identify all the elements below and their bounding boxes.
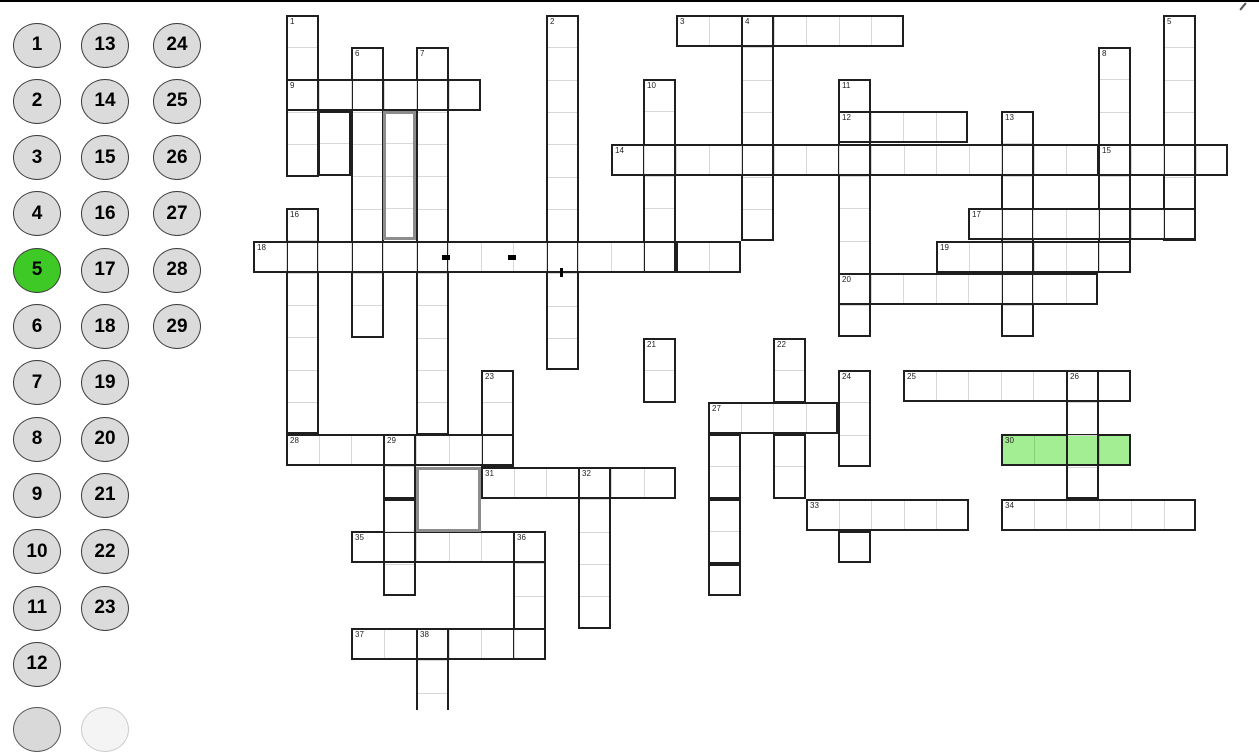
cell-divider xyxy=(548,209,577,210)
cell-divider xyxy=(580,596,609,597)
slot-number: 15 xyxy=(1102,147,1111,155)
cell-divider xyxy=(353,273,382,274)
cell-divider xyxy=(1003,176,1032,177)
outline-box xyxy=(383,499,416,596)
cell-divider xyxy=(774,17,775,45)
cell-divider xyxy=(353,144,382,145)
cell-divider xyxy=(1165,177,1194,178)
cell-divider xyxy=(288,47,317,48)
cell-divider xyxy=(548,306,577,307)
cell-divider xyxy=(1066,210,1067,238)
cell-divider xyxy=(580,499,609,500)
cell-divider xyxy=(483,402,512,403)
cell-divider xyxy=(353,209,382,210)
cell-divider xyxy=(968,372,969,400)
cell-divider xyxy=(806,146,807,174)
answer-punctuation-mark xyxy=(508,255,516,260)
cell-divider xyxy=(353,305,382,306)
cell-divider xyxy=(1099,243,1100,271)
cell-divider xyxy=(1033,372,1034,400)
cell-divider xyxy=(871,113,872,141)
cell-divider xyxy=(1196,146,1197,174)
cell-divider xyxy=(514,469,515,497)
cell-divider xyxy=(936,275,937,303)
cell-divider xyxy=(353,176,382,177)
word-slot-9[interactable]: 9 xyxy=(286,79,481,111)
cell-divider xyxy=(288,337,317,338)
cell-divider xyxy=(418,273,447,274)
cell-divider xyxy=(806,17,807,45)
cell-divider xyxy=(385,531,414,532)
outline-box xyxy=(383,111,416,240)
cell-divider xyxy=(353,112,382,113)
slot-number: 33 xyxy=(810,502,819,510)
word-slot-34[interactable]: 34 xyxy=(1001,499,1196,531)
cell-divider xyxy=(1131,210,1132,238)
cell-divider xyxy=(775,466,804,467)
word-slot-15[interactable]: 15 xyxy=(1098,144,1228,176)
slot-number: 18 xyxy=(257,244,266,252)
cell-divider xyxy=(580,532,609,533)
cell-divider xyxy=(1034,146,1035,174)
cell-divider xyxy=(449,533,450,561)
cell-divider xyxy=(840,176,869,177)
cell-divider xyxy=(969,243,970,271)
cell-divider xyxy=(418,660,447,661)
cell-divider xyxy=(286,243,287,271)
slot-number: 7 xyxy=(420,50,424,58)
outline-box xyxy=(416,467,481,532)
cell-divider xyxy=(709,243,710,271)
cell-divider xyxy=(416,533,417,561)
cell-divider xyxy=(1001,243,1002,271)
word-slot-18[interactable]: 18 xyxy=(253,241,676,273)
slot-number: 12 xyxy=(842,114,851,122)
cell-divider xyxy=(1131,146,1132,174)
slot-number: 34 xyxy=(1005,502,1014,510)
cell-divider xyxy=(839,146,840,174)
cell-divider xyxy=(383,243,384,271)
slot-number: 3 xyxy=(680,18,684,26)
cell-divider xyxy=(1100,79,1129,80)
cell-divider xyxy=(839,501,840,529)
cell-divider xyxy=(643,243,644,271)
cell-divider xyxy=(645,370,674,371)
cell-divider xyxy=(741,404,742,432)
word-slot-12[interactable]: 12 xyxy=(838,111,968,143)
cell-divider xyxy=(645,176,674,177)
answer-punctuation-mark xyxy=(442,255,450,260)
slot-number: 17 xyxy=(972,211,981,219)
cell-divider xyxy=(418,338,447,339)
cell-divider xyxy=(1100,112,1129,113)
cell-divider xyxy=(288,112,317,113)
cell-divider xyxy=(1003,305,1032,306)
cell-divider xyxy=(1099,436,1100,464)
cell-divider xyxy=(840,402,869,403)
cell-divider xyxy=(318,243,319,271)
cell-divider xyxy=(936,146,937,174)
cell-divider xyxy=(936,501,937,529)
slot-number: 35 xyxy=(355,534,364,542)
cell-divider xyxy=(871,146,872,174)
cell-divider xyxy=(611,243,612,271)
crossword-grid[interactable]: 3012345678910111213141516171819202122232… xyxy=(0,0,1259,736)
cell-divider xyxy=(1165,80,1194,81)
slot-number: 21 xyxy=(647,341,656,349)
cell-divider xyxy=(578,243,579,271)
cell-divider xyxy=(1034,501,1035,529)
cell-divider xyxy=(1033,275,1034,303)
word-slot-29[interactable]: 29 xyxy=(383,434,416,499)
cell-divider xyxy=(351,243,352,271)
cell-divider xyxy=(288,305,317,306)
cell-divider xyxy=(481,243,482,271)
slot-number: 20 xyxy=(842,276,851,284)
cell-divider xyxy=(416,243,417,271)
outline-box xyxy=(676,241,741,273)
cell-divider xyxy=(384,81,385,109)
slot-number: 9 xyxy=(290,82,294,90)
word-slot-17[interactable]: 17 xyxy=(968,208,1196,240)
cell-divider xyxy=(1163,146,1164,174)
slot-number: 25 xyxy=(907,373,916,381)
word-slot-3[interactable]: 3 xyxy=(676,15,904,47)
cell-divider xyxy=(645,111,674,112)
cell-divider xyxy=(1001,372,1002,400)
cell-divider xyxy=(1165,47,1194,48)
cell-divider xyxy=(351,81,352,109)
cell-divider xyxy=(449,630,450,658)
slot-number: 6 xyxy=(355,50,359,58)
cell-divider xyxy=(1066,501,1067,529)
cell-divider xyxy=(386,143,413,144)
cell-divider xyxy=(1131,501,1132,529)
cell-divider xyxy=(384,630,385,658)
cell-divider xyxy=(548,80,577,81)
cell-divider xyxy=(840,241,869,242)
outline-box xyxy=(708,564,741,596)
slot-number: 13 xyxy=(1005,114,1014,122)
cell-divider xyxy=(418,693,447,694)
cell-divider xyxy=(743,112,772,113)
cell-divider xyxy=(481,436,482,464)
cell-divider xyxy=(1034,436,1035,464)
cell-divider xyxy=(1098,210,1099,238)
word-slot-27[interactable]: 27 xyxy=(708,402,838,434)
cell-divider xyxy=(806,404,807,432)
slot-number: 23 xyxy=(485,373,494,381)
cell-divider xyxy=(840,208,869,209)
word-slot-21[interactable]: 21 xyxy=(643,338,676,403)
slot-number: 38 xyxy=(420,631,429,639)
cell-divider xyxy=(775,370,804,371)
cell-divider xyxy=(903,113,904,141)
slot-number: 4 xyxy=(745,18,749,26)
cell-divider xyxy=(1001,210,1002,238)
cell-divider xyxy=(385,466,414,467)
cell-divider xyxy=(840,305,869,306)
word-slot-24[interactable]: 24 xyxy=(838,370,871,467)
cell-divider xyxy=(288,144,317,145)
word-slot-4[interactable]: 4 xyxy=(741,15,774,241)
outline-box xyxy=(708,434,741,499)
cell-divider xyxy=(773,404,774,432)
cell-divider xyxy=(1066,275,1067,303)
cell-divider xyxy=(320,143,349,144)
cell-divider xyxy=(709,17,710,45)
outline-box xyxy=(773,434,806,499)
cell-divider xyxy=(1066,243,1067,271)
cell-divider xyxy=(416,436,417,464)
cell-divider xyxy=(969,146,970,174)
cell-divider xyxy=(548,338,577,339)
cell-divider xyxy=(418,305,447,306)
cell-divider xyxy=(546,243,547,271)
cell-divider xyxy=(288,273,317,274)
cell-divider xyxy=(418,144,447,145)
cell-divider xyxy=(385,564,414,565)
cell-divider xyxy=(514,630,515,658)
cell-divider xyxy=(288,370,317,371)
word-slot-32[interactable]: 32 xyxy=(578,467,611,629)
cell-divider xyxy=(1164,501,1165,529)
cell-divider xyxy=(418,209,447,210)
cell-divider xyxy=(386,208,413,209)
cell-divider xyxy=(449,436,450,464)
word-slot-14[interactable]: 14 xyxy=(611,144,1099,176)
slot-number: 10 xyxy=(647,82,656,90)
cell-divider xyxy=(709,146,710,174)
outline-box xyxy=(838,531,871,563)
cell-divider xyxy=(1068,467,1097,468)
cell-divider xyxy=(386,176,413,177)
cell-divider xyxy=(515,596,544,597)
cell-divider xyxy=(418,176,447,177)
cell-divider xyxy=(774,146,775,174)
cell-divider xyxy=(676,146,677,174)
slot-number: 22 xyxy=(777,341,786,349)
slot-number: 28 xyxy=(290,437,299,445)
cell-divider xyxy=(1099,501,1100,529)
slot-number: 5 xyxy=(1167,18,1171,26)
cell-divider xyxy=(288,402,317,403)
cell-divider xyxy=(1068,402,1097,403)
cell-divider xyxy=(546,469,547,497)
word-slot-33[interactable]: 33 xyxy=(806,499,969,531)
cell-divider xyxy=(871,17,872,45)
cell-divider xyxy=(449,81,450,109)
slot-number: 19 xyxy=(940,244,949,252)
slot-number: 27 xyxy=(712,405,721,413)
cell-divider xyxy=(1163,210,1164,238)
cell-divider xyxy=(743,47,772,48)
cell-divider xyxy=(871,275,872,303)
cell-divider xyxy=(481,630,482,658)
cell-divider xyxy=(904,501,905,529)
cell-divider xyxy=(743,209,772,210)
cell-divider xyxy=(580,564,609,565)
cell-divider xyxy=(319,436,320,464)
cell-divider xyxy=(418,370,447,371)
cell-divider xyxy=(548,144,577,145)
cell-divider xyxy=(871,501,872,529)
cell-divider xyxy=(1165,112,1194,113)
cell-divider xyxy=(840,435,869,436)
slot-number: 14 xyxy=(615,147,624,155)
cell-divider xyxy=(548,112,577,113)
slot-number: 2 xyxy=(550,18,554,26)
cell-divider xyxy=(743,177,772,178)
answer-punctuation-mark xyxy=(560,268,563,277)
cell-divider xyxy=(904,146,905,174)
word-slot-22[interactable]: 22 xyxy=(773,338,806,403)
cell-divider xyxy=(319,81,320,109)
cell-divider xyxy=(710,531,739,532)
cell-divider xyxy=(1068,435,1097,436)
slot-number: 32 xyxy=(582,470,591,478)
cell-divider xyxy=(418,402,447,403)
cell-divider xyxy=(1066,146,1067,174)
word-slot-38[interactable]: 38 xyxy=(416,628,449,710)
cell-divider xyxy=(741,146,742,174)
cell-divider xyxy=(644,146,645,174)
cell-divider xyxy=(416,81,417,109)
slot-number: 31 xyxy=(485,470,494,478)
cell-divider xyxy=(548,177,577,178)
cell-divider xyxy=(968,275,969,303)
cell-divider xyxy=(548,47,577,48)
cell-divider xyxy=(839,17,840,45)
outline-box xyxy=(318,111,351,176)
cell-divider xyxy=(1034,243,1035,271)
cell-divider xyxy=(936,113,937,141)
outline-box xyxy=(708,499,741,564)
slot-number: 16 xyxy=(290,211,299,219)
cell-divider xyxy=(644,469,645,497)
slot-number: 11 xyxy=(842,82,850,90)
slot-number: 30 xyxy=(1005,437,1014,445)
slot-number: 36 xyxy=(517,534,526,542)
word-slot-2[interactable]: 2 xyxy=(546,15,579,370)
cell-divider xyxy=(611,469,612,497)
cell-divider xyxy=(743,80,772,81)
cell-divider xyxy=(1001,146,1002,174)
cell-divider xyxy=(418,112,447,113)
cell-divider xyxy=(1001,275,1002,303)
cell-divider xyxy=(515,563,544,564)
slot-number: 24 xyxy=(842,373,851,381)
cell-divider xyxy=(710,466,739,467)
word-slot-19[interactable]: 19 xyxy=(936,241,1131,273)
word-slot-20[interactable]: 20 xyxy=(838,273,1098,305)
cell-divider xyxy=(936,372,937,400)
cell-divider xyxy=(1033,210,1034,238)
slot-number: 26 xyxy=(1070,373,1079,381)
cell-divider xyxy=(351,436,352,464)
slot-number: 1 xyxy=(290,18,294,26)
cell-divider xyxy=(481,533,482,561)
cell-divider xyxy=(1100,176,1129,177)
word-slot-26[interactable]: 26 xyxy=(1066,370,1099,499)
slot-number: 37 xyxy=(355,631,364,639)
cell-divider xyxy=(903,275,904,303)
slot-number: 29 xyxy=(387,437,396,445)
slot-number: 8 xyxy=(1102,50,1106,58)
cell-divider xyxy=(645,208,674,209)
